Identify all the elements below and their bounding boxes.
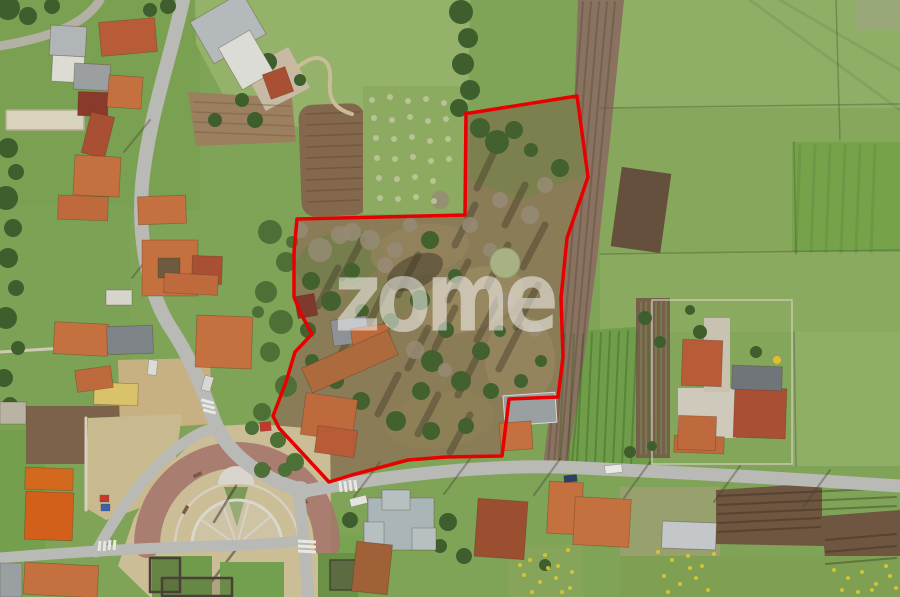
tree xyxy=(260,342,280,362)
orchard-tree xyxy=(387,94,393,100)
flowers xyxy=(894,586,898,590)
field xyxy=(792,332,900,466)
car xyxy=(564,474,578,482)
flowers xyxy=(888,574,892,578)
orchard-tree xyxy=(391,136,397,142)
red-structure xyxy=(260,422,272,432)
orchard-tree xyxy=(373,135,379,141)
tree xyxy=(438,322,454,338)
tree xyxy=(235,93,249,107)
flowers xyxy=(570,570,574,574)
flowers xyxy=(556,564,560,568)
bare-tree xyxy=(406,341,424,359)
tree xyxy=(483,383,499,399)
tree xyxy=(143,3,157,17)
flowers xyxy=(678,582,682,586)
orchard-tree xyxy=(430,178,436,184)
house xyxy=(677,415,716,450)
tree xyxy=(269,310,293,334)
tree xyxy=(19,7,37,25)
bare-tree xyxy=(387,242,403,258)
tree xyxy=(524,143,538,157)
flowers xyxy=(670,558,674,562)
orchard-tree xyxy=(374,155,380,161)
flowers xyxy=(566,548,570,552)
flowers xyxy=(666,590,670,594)
house xyxy=(733,387,787,439)
flowers xyxy=(846,576,850,580)
tree xyxy=(342,512,358,528)
tree xyxy=(4,219,22,237)
tree xyxy=(439,513,457,531)
bare-tree xyxy=(360,230,380,250)
tree xyxy=(458,28,478,48)
walled-pen xyxy=(6,110,84,130)
house xyxy=(107,75,143,109)
umbrella xyxy=(773,356,781,364)
tree xyxy=(456,548,472,564)
tree xyxy=(302,272,320,290)
tree xyxy=(253,403,271,421)
house xyxy=(73,63,110,91)
tree xyxy=(208,113,222,127)
tree xyxy=(258,220,282,244)
tree xyxy=(460,80,480,100)
tree xyxy=(485,130,509,154)
flowers xyxy=(856,590,860,594)
orchard-tree xyxy=(405,98,411,104)
tree xyxy=(505,121,523,139)
flowers xyxy=(543,553,547,557)
house xyxy=(53,322,109,357)
tree xyxy=(245,421,259,435)
tree xyxy=(452,53,474,75)
tree xyxy=(750,346,762,358)
flowers xyxy=(560,590,564,594)
tree xyxy=(624,446,636,458)
flowers xyxy=(656,550,660,554)
tree xyxy=(294,74,306,86)
house xyxy=(99,18,158,57)
house xyxy=(351,541,392,594)
bare-tree xyxy=(343,223,361,241)
tree xyxy=(551,159,569,177)
tree xyxy=(421,231,439,249)
scrub xyxy=(855,0,900,30)
flowers xyxy=(538,580,542,584)
aerial-photo-stage: zome xyxy=(0,0,900,597)
car xyxy=(605,464,623,474)
orchard-tree xyxy=(389,117,395,123)
tree xyxy=(252,306,264,318)
flowers xyxy=(662,574,666,578)
tree xyxy=(8,280,24,296)
orchard-tree xyxy=(441,100,447,106)
flowers xyxy=(530,590,534,594)
house xyxy=(195,315,253,369)
bare-tree xyxy=(528,323,542,337)
orchard-tree xyxy=(428,158,434,164)
bare-tree xyxy=(497,292,513,308)
orchard-tree xyxy=(427,138,433,144)
flowers xyxy=(860,570,864,574)
house xyxy=(0,563,22,597)
tree xyxy=(11,341,25,355)
house xyxy=(138,195,187,225)
flowers xyxy=(528,558,532,562)
house xyxy=(75,366,114,393)
flowers xyxy=(874,582,878,586)
flowers xyxy=(686,554,690,558)
flowers xyxy=(700,564,704,568)
house xyxy=(732,365,783,391)
orchard-tree xyxy=(371,115,377,121)
container xyxy=(100,495,109,502)
car xyxy=(147,360,158,376)
tree xyxy=(514,374,528,388)
house xyxy=(58,195,109,221)
modern-house xyxy=(412,528,436,550)
tree xyxy=(685,305,695,315)
orchard-tree xyxy=(445,136,451,142)
tree xyxy=(472,342,490,360)
orchard-tree xyxy=(376,175,382,181)
modern-house xyxy=(382,490,410,510)
house xyxy=(681,339,723,386)
orchard-tree xyxy=(407,114,413,120)
house xyxy=(474,498,528,559)
pergola xyxy=(162,578,232,596)
flowers xyxy=(694,576,698,580)
house xyxy=(49,25,87,57)
orchard-tree xyxy=(425,118,431,124)
orchard-tree xyxy=(431,198,437,204)
orchard-tree xyxy=(412,174,418,180)
house xyxy=(164,273,219,296)
sage-tree xyxy=(490,248,520,278)
flowers xyxy=(832,568,836,572)
orchard-tree xyxy=(443,116,449,122)
tree xyxy=(458,418,474,434)
orchard-tree xyxy=(377,195,383,201)
house xyxy=(73,155,121,197)
bare-tree xyxy=(537,177,553,193)
tree xyxy=(247,112,263,128)
tree xyxy=(448,269,462,283)
flowers xyxy=(518,563,522,567)
flowers xyxy=(568,586,572,590)
flowers xyxy=(688,566,692,570)
tree xyxy=(255,281,277,303)
tree xyxy=(451,371,471,391)
orchard-tree xyxy=(394,176,400,182)
greenhouse xyxy=(662,521,717,550)
tree xyxy=(321,291,341,311)
orchard-tree xyxy=(369,97,375,103)
tree xyxy=(8,164,24,180)
tree xyxy=(470,118,490,138)
house xyxy=(107,325,154,355)
tree xyxy=(449,0,473,24)
orchard-tree xyxy=(410,154,416,160)
tree xyxy=(494,325,506,337)
flowers xyxy=(554,576,558,580)
bare-tree xyxy=(492,192,508,208)
flowers xyxy=(870,588,874,592)
tree xyxy=(278,463,292,477)
orchard-tree xyxy=(395,196,401,202)
house xyxy=(23,562,99,597)
warehouse xyxy=(25,467,74,491)
warehouse xyxy=(24,491,74,541)
orchard-tree xyxy=(446,156,452,162)
tree xyxy=(647,441,657,451)
aerial-photo xyxy=(0,0,900,597)
tree xyxy=(422,422,440,440)
flowers xyxy=(706,588,710,592)
tree xyxy=(638,311,652,325)
tree xyxy=(535,355,547,367)
bare-tree xyxy=(308,238,332,262)
flowers xyxy=(840,588,844,592)
tree xyxy=(254,462,270,478)
tree xyxy=(654,336,666,348)
orchard-tree xyxy=(423,96,429,102)
house xyxy=(573,497,631,548)
flowers xyxy=(522,573,526,577)
shed xyxy=(106,290,132,305)
orchard-tree xyxy=(409,134,415,140)
flowers xyxy=(546,566,550,570)
bare-tree xyxy=(462,217,478,233)
bare-tree xyxy=(377,257,393,273)
flowers xyxy=(884,564,888,568)
house xyxy=(314,425,357,457)
tree xyxy=(693,325,707,339)
tree xyxy=(386,411,406,431)
tree xyxy=(412,382,430,400)
orchard-tree xyxy=(392,156,398,162)
shed xyxy=(0,402,26,424)
junction xyxy=(290,481,310,501)
tree xyxy=(410,290,430,310)
orchard-tree xyxy=(413,194,419,200)
tree xyxy=(344,263,360,279)
bare-tree xyxy=(521,206,539,224)
bare-tree xyxy=(438,363,452,377)
bare-tree xyxy=(403,218,417,232)
container xyxy=(101,504,110,511)
flowers xyxy=(712,552,716,556)
